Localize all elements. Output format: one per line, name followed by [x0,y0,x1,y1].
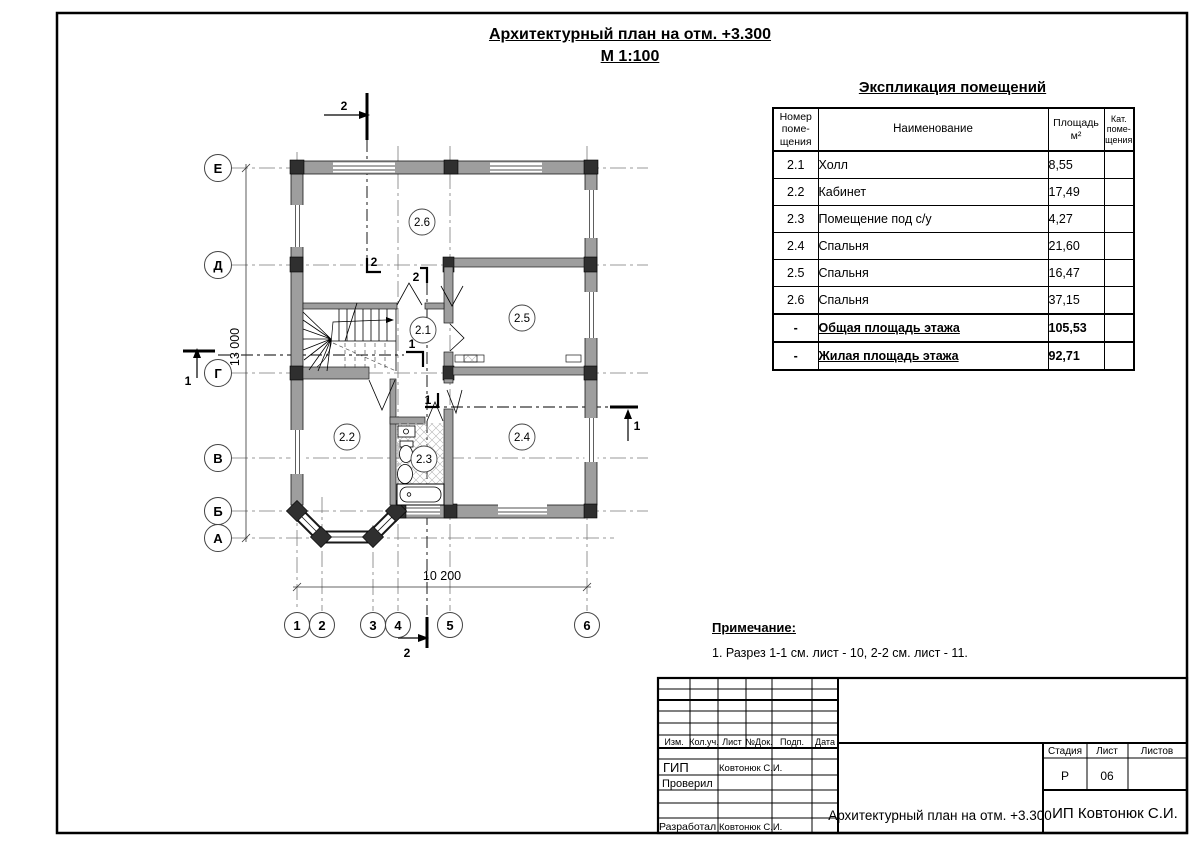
cell-name: Помещение под с/у [818,206,1048,233]
stamp-role-proveril: Проверил [662,778,713,790]
axis-label-1: 1 [293,618,300,633]
section2-label-mid2: 2 [413,270,420,284]
title-block: Изм. Кол.уч. Лист №Док. Подп. Дата ГИП К… [658,678,1187,833]
notes-item: 1. Разрез 1-1 см. лист - 10, 2-2 см. лис… [712,646,968,660]
axis-label-3: 3 [369,618,376,633]
cell-num: 2.6 [773,287,818,315]
table-row: 2.2 Кабинет 17,49 [773,179,1134,206]
stamp-role-razrabotal: Разработал [659,821,716,833]
cell-cat [1104,179,1134,206]
cell-name: Кабинет [818,179,1048,206]
table-row: 2.3 Помещение под с/у 4,27 [773,206,1134,233]
cell-cat [1104,287,1134,315]
section2-label-top: 2 [341,99,348,113]
stamp-org-name: ИП Ковтонюк С.И. [1052,805,1178,822]
header-room-number: Номер поме- щения [773,108,818,151]
stamp-name-razrabotal: Ковтонюк С.И. [719,822,782,833]
section-lines [218,140,608,615]
stamp-doc-title: Архитектурный план на отм. +3.300 [828,808,1052,823]
cell-area: 21,60 [1048,233,1104,260]
table-row: 2.1 Холл 8,55 [773,151,1134,179]
cell-name: Спальня [818,260,1048,287]
stair [303,303,396,371]
cell-cat [1104,233,1134,260]
dim-height-label: 13 000 [228,328,242,366]
dim-width-label: 10 200 [423,569,461,583]
explication-table: Номер поме- щения Наименование Площадь м… [772,107,1135,371]
axis-label-d: Д [213,258,223,273]
stamp-stage-label: Стадия [1048,746,1082,757]
cell-cat [1104,342,1134,370]
header-room-name: Наименование [818,108,1048,151]
axis-label-g: Г [214,366,222,381]
section1-label-right: 1 [634,419,641,433]
axis-label-5: 5 [446,618,453,633]
cell-name: Спальня [818,287,1048,315]
cell-num: 2.2 [773,179,818,206]
header-room-cat: Кат. поме- щения [1104,108,1134,151]
drawing-sheet: 13 000 10 200 [0,0,1200,848]
stamp-name-gip: Ковтонюк С.И. [719,763,782,774]
stamp-sheet-label: Лист [1096,746,1118,757]
room-label-2-2: 2.2 [339,432,355,444]
cell-area: 92,71 [1048,342,1104,370]
axis-label-2: 2 [318,618,325,633]
cell-num: - [773,342,818,370]
table-header-row: Номер поме- щения Наименование Площадь м… [773,108,1134,151]
cell-name: Спальня [818,233,1048,260]
cell-num: 2.3 [773,206,818,233]
cell-cat [1104,206,1134,233]
room-label-2-1: 2.1 [415,325,431,337]
axis-label-a: А [213,531,223,546]
table-total-row: - Жилая площадь этажа 92,71 [773,342,1134,370]
room-label-2-5: 2.5 [514,313,530,325]
notes-title: Примечание: [712,620,796,635]
section-markers: 2 2 2 2 1 1 1 1 [183,93,641,660]
bay-window-walls [297,512,397,537]
cell-name: Общая площадь этажа [818,314,1048,342]
explication-title: Экспликация помещений [772,79,1133,96]
cell-area: 17,49 [1048,179,1104,206]
table-row: 2.4 Спальня 21,60 [773,233,1134,260]
cell-name: Жилая площадь этажа [818,342,1048,370]
axis-label-e: Е [214,161,223,176]
room-label-2-6: 2.6 [414,217,430,229]
page-title-line1: Архитектурный план на отм. +3.300 [330,24,930,46]
room-label-2-4: 2.4 [514,432,531,444]
cell-cat [1104,260,1134,287]
stamp-sheet-value: 06 [1100,769,1114,783]
stamp-col-list: Лист [722,737,742,747]
page-title: Архитектурный план на отм. +3.300 М 1:10… [330,24,930,67]
table-row: 2.6 Спальня 37,15 [773,287,1134,315]
cell-area: 4,27 [1048,206,1104,233]
cell-num: 2.5 [773,260,818,287]
section1-label-left: 1 [185,374,192,388]
section2-label-bottom: 2 [404,646,411,660]
section2-label-mid1: 2 [371,255,378,269]
cell-num: 2.1 [773,151,818,179]
cell-area: 105,53 [1048,314,1104,342]
axis-label-4: 4 [394,618,402,633]
cell-cat [1104,151,1134,179]
cell-name: Холл [818,151,1048,179]
stamp-role-gip: ГИП [663,760,689,775]
cell-num: - [773,314,818,342]
cell-num: 2.4 [773,233,818,260]
axis-label-6: 6 [583,618,590,633]
axis-label-v: В [213,451,222,466]
room-label-2-3: 2.3 [416,454,432,466]
stamp-sheets-label: Листов [1141,746,1174,757]
header-room-area: Площадь м² [1048,108,1104,151]
cell-area: 16,47 [1048,260,1104,287]
stamp-col-podp: Подп. [780,737,804,747]
stamp-col-izm: Изм. [664,737,683,747]
stamp-col-koluch: Кол.уч. [689,737,719,747]
section1-label-mid2: 1 [425,393,432,407]
stamp-stage-value: Р [1061,769,1069,783]
cell-area: 37,15 [1048,287,1104,315]
page-title-scale: М 1:100 [330,46,930,68]
stamp-col-data: Дата [815,737,835,747]
table-total-row: - Общая площадь этажа 105,53 [773,314,1134,342]
stamp-col-dok: №Док. [745,737,772,747]
dimensions: 13 000 10 200 [228,164,591,591]
axis-label-b: Б [213,504,222,519]
axis-bubbles: Е Д Г В Б А 1 2 3 4 5 6 [205,155,600,638]
table-row: 2.5 Спальня 16,47 [773,260,1134,287]
cell-area: 8,55 [1048,151,1104,179]
cell-cat [1104,314,1134,342]
